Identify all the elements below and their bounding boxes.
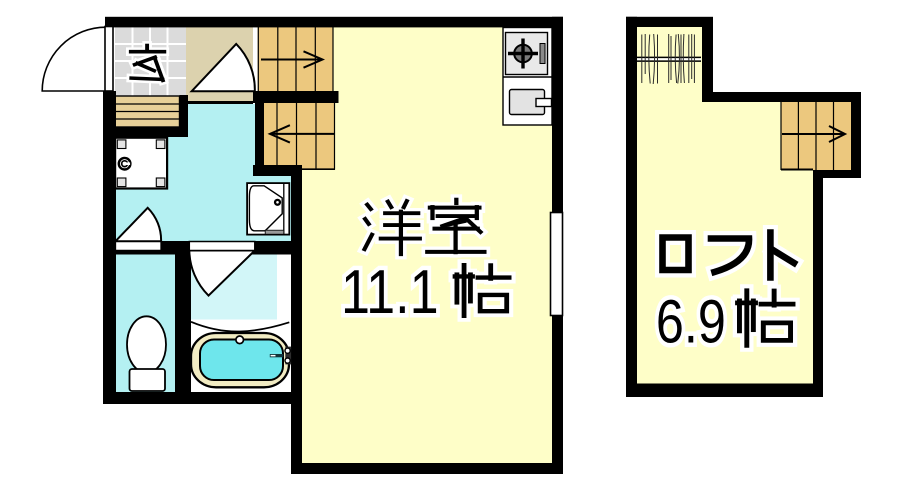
svg-text:6.9: 6.9 [656, 287, 726, 356]
svg-text:11.1: 11.1 [341, 258, 439, 327]
